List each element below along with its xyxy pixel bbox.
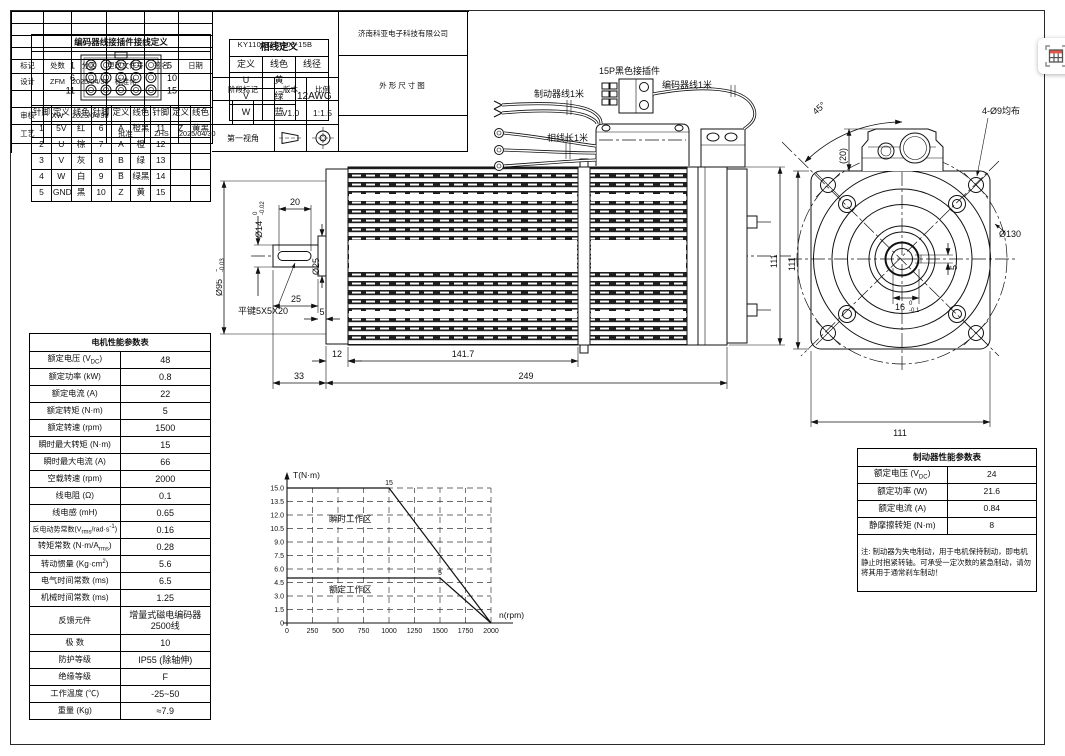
holes-label: 4-Ø9均布 [982, 105, 1020, 116]
td-element [191, 169, 211, 185]
td-element: 工艺 [12, 125, 44, 144]
td-element [107, 108, 145, 125]
td-element: 额定转矩 (N·m) [30, 403, 121, 420]
td-element: 48 [120, 352, 211, 369]
td-element: 反电动势常数(Vrms/rad·s-1) [30, 522, 121, 539]
line-element [494, 109, 502, 113]
tr-element: 线电感 (mH)0.65 [30, 505, 211, 522]
text-element: 141.7 [452, 349, 475, 359]
text-element: 111 [893, 428, 907, 438]
td-element [12, 48, 44, 60]
tr-element: 瞬时最大转矩 (N·m)15 [30, 437, 211, 454]
td-element: 额定功率 (kW) [30, 369, 121, 386]
tr-element: 设计ZFM2025/04/30标准化 [12, 74, 213, 91]
td-element: 额定电流 (A) [30, 386, 121, 403]
text-element: 500 [332, 628, 344, 635]
td-element [44, 125, 72, 144]
td-element [171, 185, 191, 201]
td-element: 绝缘等级 [30, 669, 121, 686]
td-element [44, 24, 72, 36]
td-element [145, 74, 179, 91]
td-element: 绿黑 [131, 169, 151, 185]
td-element: ZFM [44, 74, 72, 91]
td-element [145, 48, 179, 60]
text-element: 111 [769, 254, 779, 268]
td-element: W [51, 169, 71, 185]
text-element: 1500 [432, 628, 448, 635]
text-element: -0.02 [260, 201, 266, 215]
g-element: Ø25 [311, 258, 321, 275]
td-element: 灰 [71, 153, 91, 169]
td-element: 8 [947, 518, 1037, 535]
circle-element [949, 306, 966, 323]
text-element: 111 [787, 257, 797, 271]
rect-element [591, 194, 686, 201]
tr-element: 极 数10 [30, 635, 211, 652]
rect-element [610, 83, 617, 89]
encoder-wire-label: 编码器线1米 [662, 79, 712, 90]
td-element [44, 48, 72, 60]
path-element [284, 472, 289, 480]
td-element: 空载转速 (rpm) [30, 471, 121, 488]
text-element: 15.0 [270, 486, 284, 493]
text-element: Ø14 [254, 221, 264, 238]
brake-wire-label: 制动器线1米 [534, 88, 584, 99]
text-element: 7.5 [274, 553, 284, 560]
td-element: 审核 [12, 108, 44, 125]
projection-circle-icon [307, 125, 339, 152]
td-element: 处数 [44, 60, 72, 74]
td-element: 14 [151, 169, 171, 185]
g-element: 111 [787, 257, 797, 271]
td-element [44, 91, 72, 108]
td-element [145, 36, 179, 48]
td-element: 瞬时最大转矩 (N·m) [30, 437, 121, 454]
tr-element: 额定电压 (VDC)48 [30, 352, 211, 369]
td-element: 0.84 [947, 501, 1037, 518]
encoder-row: 4W白9B̅绿黑14 [32, 169, 211, 185]
text-element: 10.5 [270, 526, 284, 533]
rect-element [747, 216, 757, 228]
text-element: 1000 [381, 628, 397, 635]
td-element [179, 91, 213, 108]
rect-element [349, 311, 577, 318]
key-label: 平键5X5X20 [238, 305, 288, 316]
tr-element: 工作温度 (℃)-25~50 [30, 686, 211, 703]
td-element: 反馈元件 [30, 607, 121, 635]
td-element: 设计 [12, 74, 44, 91]
td-element: 线电阻 (Ω) [30, 488, 121, 505]
revision-table: 标记处数 分区更改文件号 签名日期 设计ZFM2025/04/30标准化 审核X… [11, 11, 213, 144]
circle-element [495, 162, 504, 171]
text-element: 1.5 [274, 607, 284, 614]
revision-header-row: 标记处数 分区更改文件号 签名日期 [12, 60, 213, 74]
terminal-box [596, 124, 689, 166]
text-element: 0 [253, 211, 259, 215]
tbody-element: 标记处数 分区更改文件号 签名日期 设计ZFM2025/04/30标准化 审核X… [12, 12, 213, 144]
text-element: 额定工作区 [329, 584, 372, 594]
td-element: 5.6 [120, 556, 211, 573]
td-element: 标记 [12, 60, 44, 74]
drawing-page: 编码器线接插件接线定义 1 [0, 0, 1065, 756]
motor-front-view: (20) 45° 4-Ø9均布 Ø130 111 111 5 16 0 [782, 100, 1021, 438]
keyway [278, 252, 311, 261]
td-element: 5 [120, 403, 211, 420]
text-element: Ø95 [216, 279, 224, 296]
td-element [179, 74, 213, 91]
td-element [191, 153, 211, 169]
text-element: 1250 [407, 628, 423, 635]
brake-wires [494, 100, 601, 124]
text-element: T(N·m) [293, 470, 320, 480]
td-element: 0.28 [120, 539, 211, 556]
td-element: 分区 [72, 60, 107, 74]
text-element: 20 [290, 197, 300, 207]
text-element: 9.0 [274, 540, 284, 547]
td-element [107, 24, 145, 36]
version-label: 版本 [275, 78, 307, 101]
td-element: 15 [151, 185, 171, 201]
td-element: 10 [91, 185, 111, 201]
td-element [191, 185, 211, 201]
td-element: XW [44, 108, 72, 125]
td-element: V [51, 153, 71, 169]
td-element [12, 12, 44, 24]
rect-element [602, 83, 609, 89]
tr-element: 静摩擦转矩 (N·m)8 [858, 518, 1037, 535]
tr-element: 电气时间常数 (ms)6.5 [30, 573, 211, 590]
svg-element [1045, 45, 1065, 67]
text-element: 5 [319, 307, 324, 317]
td-element: 机械时间常数 (ms) [30, 590, 121, 607]
text-element: 249 [518, 371, 533, 381]
text-element: 1750 [458, 628, 474, 635]
text-element: 12 [332, 349, 342, 359]
td-element: 2025/04/30 [179, 125, 213, 144]
version-value: V1.0 [275, 101, 307, 125]
text-element: 2000 [483, 628, 499, 635]
td-element: 额定转速 (rpm) [30, 420, 121, 437]
tbody-element: 制动器性能参数表 额定电压 (VDC)24 额定功率 (W)21.6 额定电流 … [858, 449, 1037, 592]
svg-element [278, 130, 304, 146]
text-element: 250 [307, 628, 319, 635]
tr-element: 重量 (Kg)≈7.9 [30, 703, 211, 720]
table-capture-icon[interactable] [1038, 38, 1065, 74]
text-element: 6.0 [274, 567, 284, 574]
text-element: 12.0 [270, 513, 284, 520]
rect-element [349, 194, 577, 201]
circle-element [953, 310, 962, 319]
tr-element: 额定电流 (A)22 [30, 386, 211, 403]
circle-element [839, 196, 856, 213]
encoder-row: 5GND黑10Z黄15 [32, 185, 211, 201]
scale-label: 比例 [307, 78, 339, 101]
td-element: 更改文件号 [107, 60, 145, 74]
sup-element: -1 [109, 524, 114, 530]
title-block: 标记处数 分区更改文件号 签名日期 设计ZFM2025/04/30标准化 审核X… [11, 11, 469, 153]
rect-element [602, 99, 609, 105]
td-element: IP55 (除轴伸) [120, 652, 211, 669]
td-element [72, 91, 107, 108]
projection-cone-icon [275, 125, 307, 152]
path-element [502, 111, 597, 124]
tr-element: 额定转矩 (N·m)5 [30, 403, 211, 420]
rect-element [591, 240, 686, 272]
text-element: 4.5 [274, 580, 284, 587]
motor-parameters-table: 电机性能参数表 额定电压 (VDC)48 额定功率 (kW)0.8 额定电流 (… [29, 333, 211, 720]
tr-element: 空载转速 (rpm)2000 [30, 471, 211, 488]
tr-element: 工艺批准ZHS2025/04/30 [12, 125, 213, 144]
td-element: 极 数 [30, 635, 121, 652]
td-element [179, 48, 213, 60]
td-element: 静摩擦转矩 (N·m) [858, 518, 948, 535]
td-element: 1500 [120, 420, 211, 437]
div-element [339, 116, 468, 152]
encoder-connector-15p [602, 79, 653, 113]
tr-element [12, 24, 213, 36]
td-element: 转动惯量 (Kg·cm2) [30, 556, 121, 573]
td-element [145, 24, 179, 36]
path-element [502, 104, 601, 124]
td-element: 增量式磁电编码器2500线 [120, 607, 211, 635]
text-element: 瞬时工作区 [329, 514, 372, 524]
td-element: 0.8 [120, 369, 211, 386]
td-element [72, 125, 107, 144]
circle-element [843, 200, 852, 209]
rect-element [602, 91, 609, 97]
text-element: 5 [949, 265, 959, 270]
td-element [107, 12, 145, 24]
td-element: ZHS [145, 125, 179, 144]
td-element: 额定电压 (VDC) [858, 467, 948, 484]
text-element: 5 [438, 570, 442, 577]
td-element: GND [51, 185, 71, 201]
td-element [145, 91, 179, 108]
td-element: 额定功率 (W) [858, 484, 948, 501]
div-element [254, 101, 275, 125]
td-element: 黄 [131, 185, 151, 201]
projection-label: 第一视角 [212, 125, 275, 152]
sub-element: DC [919, 474, 928, 480]
td-element: 线电感 (mH) [30, 505, 121, 522]
td-element: 13 [151, 153, 171, 169]
connector-15p-label: 15P黑色接插件 [599, 65, 660, 76]
td-element: 10 [120, 635, 211, 652]
phase-wire-label: 相线长1米 [547, 132, 588, 143]
sub-element: DC [91, 359, 100, 365]
svg-element [311, 127, 335, 149]
text-element: n(rpm) [499, 610, 524, 620]
td-element: 0.16 [120, 522, 211, 539]
text-element: 0 [285, 628, 289, 635]
td-element: B̅ [111, 169, 131, 185]
circle-element [949, 196, 966, 213]
company-name: 济南科亚电子科技有限公司 [339, 11, 468, 56]
clamp-band [687, 167, 698, 345]
td-element: 转矩常数 (N·m/Arms) [30, 539, 121, 556]
drawing-title: 外形尺寸图 [339, 56, 468, 116]
text-element: 750 [358, 628, 370, 635]
motor-table-title: 电机性能参数表 [30, 334, 211, 352]
td-element: Z [111, 185, 131, 201]
td-element [72, 48, 107, 60]
sub-element: rms [81, 529, 91, 535]
sub-element: rms [99, 546, 109, 552]
path-element [502, 104, 601, 124]
td-element [12, 24, 44, 36]
part-number: KY110ACS0408-15B [212, 11, 339, 78]
text-element: 0 [909, 301, 913, 307]
td-element: 批准 [107, 125, 145, 144]
td-element: 15 [120, 437, 211, 454]
line-element [494, 113, 502, 117]
tr-element: 防护等级IP55 (除轴伸) [30, 652, 211, 669]
rear-housing [698, 167, 727, 345]
rect-element [349, 240, 577, 272]
td-element: ≈7.9 [120, 703, 211, 720]
path-element [653, 89, 755, 129]
td-element: 24 [947, 467, 1037, 484]
circle-element [900, 133, 930, 163]
td-element: 22 [120, 386, 211, 403]
tr-element: 反电动势常数(Vrms/rad·s-1)0.16 [30, 522, 211, 539]
front-flange [326, 169, 348, 344]
td-element [171, 153, 191, 169]
table-element: 标记处数 分区更改文件号 签名日期 设计ZFM2025/04/30标准化 审核X… [11, 11, 213, 144]
circle-element [495, 129, 504, 138]
tr-element: 反馈元件增量式磁电编码器2500线 [30, 607, 211, 635]
td-element [12, 36, 44, 48]
circle-element [953, 200, 962, 209]
td-element: B [111, 153, 131, 169]
td-element: 3 [32, 153, 52, 169]
td-element [145, 108, 179, 125]
text-element: Ø25 [311, 258, 321, 275]
td-element [107, 48, 145, 60]
td-element [72, 12, 107, 24]
encoder-cable [653, 85, 755, 129]
tr-element: 线电阻 (Ω)0.1 [30, 488, 211, 505]
rect-element [580, 345, 588, 353]
clamp-band [578, 167, 590, 345]
td-element: 0.65 [120, 505, 211, 522]
td-element: 4 [32, 169, 52, 185]
div-element [233, 101, 254, 125]
tbody-element: 电机性能参数表 额定电压 (VDC)48 额定功率 (kW)0.8 额定电流 (… [30, 334, 211, 720]
td-element: 工作温度 (℃) [30, 686, 121, 703]
text-element: 13.5 [270, 499, 284, 506]
text-element: (20) [838, 148, 848, 164]
td-element: 额定电压 (VDC) [30, 352, 121, 369]
tr-element: 电机性能参数表 [30, 334, 211, 352]
td-element: 黑 [71, 185, 91, 201]
td-element: F [120, 669, 211, 686]
tr-element: 转动惯量 (Kg·cm2)5.6 [30, 556, 211, 573]
div-element [212, 101, 233, 125]
tr-element [12, 91, 213, 108]
line-element [494, 105, 502, 109]
td-element: 日期 [179, 60, 213, 74]
g-element: (20) [838, 148, 848, 164]
td-element: -25~50 [120, 686, 211, 703]
table-element: 电机性能参数表 额定电压 (VDC)48 额定功率 (kW)0.8 额定电流 (… [29, 333, 211, 720]
td-element [12, 91, 44, 108]
tr-element: 额定功率 (kW)0.8 [30, 369, 211, 386]
td-element: 标准化 [107, 74, 145, 91]
stage-label: 阶段标记 [212, 78, 275, 101]
td-element: 66 [120, 454, 211, 471]
tr-element: 机械时间常数 (ms)1.25 [30, 590, 211, 607]
td-element: 电气时间常数 (ms) [30, 573, 121, 590]
td-element [145, 12, 179, 24]
tr-element: 额定功率 (W)21.6 [858, 484, 1037, 501]
line-element [494, 101, 502, 105]
td-element [72, 36, 107, 48]
text-element: 45° [811, 100, 828, 117]
torque-speed-chart: 01.53.04.56.07.59.010.512.013.515.002505… [257, 463, 557, 658]
tr-element: 瞬时最大电流 (A)66 [30, 454, 211, 471]
brake-note: 注: 制动器为失电制动，用于电机保持制动，即电机静止时抱紧转轴。可承受一定次数的… [858, 535, 1037, 592]
rect-element [747, 304, 757, 316]
tr-element: 额定电压 (VDC)24 [858, 467, 1037, 484]
g-element: 45° [811, 100, 828, 117]
rect-element [610, 99, 617, 105]
g-element: 5 [949, 265, 959, 270]
rear-cap [727, 169, 747, 343]
td-element: 6.5 [120, 573, 211, 590]
td-element: 瞬时最大电流 (A) [30, 454, 121, 471]
rect-element [610, 91, 617, 97]
td-element [44, 12, 72, 24]
td-element: 2000 [120, 471, 211, 488]
tr-element: 额定转速 (rpm)1500 [30, 420, 211, 437]
td-element [107, 36, 145, 48]
tr-element: 额定电流 (A)0.84 [858, 501, 1037, 518]
line-element [977, 118, 988, 176]
g-element: Ø95 0 -0.03 [216, 258, 226, 296]
circle-label: Ø130 [999, 229, 1021, 239]
table-element: 制动器性能参数表 额定电压 (VDC)24 额定功率 (W)21.6 额定电流 … [857, 448, 1037, 592]
td-element: 绿 [131, 153, 151, 169]
td-element [107, 91, 145, 108]
td-element: 21.6 [947, 484, 1037, 501]
text-element: 0 [280, 621, 284, 628]
brake-parameters-table: 制动器性能参数表 额定电压 (VDC)24 额定功率 (W)21.6 额定电流 … [857, 448, 1037, 592]
td-element: 重量 (Kg) [30, 703, 121, 720]
td-element [179, 12, 213, 24]
tr-element: 审核XW2025/04/30 [12, 108, 213, 125]
td-element: 白 [71, 169, 91, 185]
tr-element: 绝缘等级F [30, 669, 211, 686]
td-element [179, 24, 213, 36]
encoder-row: 3V灰8B绿13 [32, 153, 211, 169]
sup-element: 2 [102, 559, 105, 565]
td-element [179, 36, 213, 48]
td-element [44, 36, 72, 48]
tr-element [12, 48, 213, 60]
text-element: 33 [294, 371, 304, 381]
drawing-sheet-frame: 编码器线接插件接线定义 1 [10, 10, 1045, 745]
td-element: 9 [91, 169, 111, 185]
text-element: 16 [895, 302, 905, 312]
td-element: 8 [91, 153, 111, 169]
td-element [171, 169, 191, 185]
td-element: 5 [32, 185, 52, 201]
circle-element [495, 146, 504, 155]
td-element: 额定电流 (A) [858, 501, 948, 518]
text-element: -0.1 [909, 308, 920, 314]
td-element [179, 108, 213, 125]
